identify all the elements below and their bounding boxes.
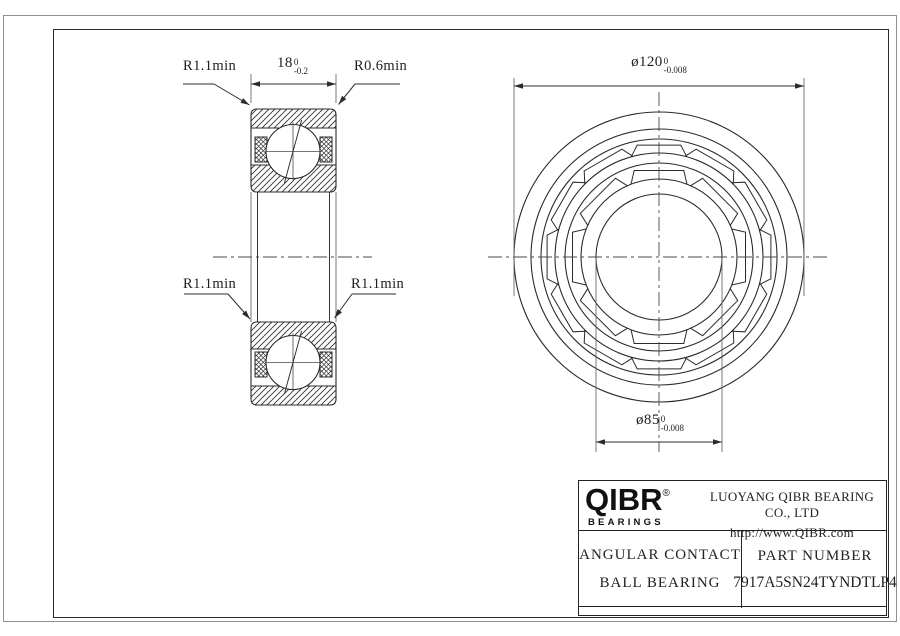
product-type-line1: ANGULAR CONTACT — [579, 547, 741, 564]
part-number-value: 7917A5SN24TYNDTLP4 — [733, 574, 897, 592]
outer-diameter-tol-lower: -0.008 — [664, 66, 687, 75]
fillet-label-top-right: R0.6min — [354, 58, 407, 75]
product-type-line2: BALL BEARING — [599, 575, 720, 592]
outer-diameter-value: ø120 — [631, 54, 663, 70]
bore-diameter-value: ø85 — [636, 412, 660, 428]
part-number-label: PART NUMBER — [758, 548, 873, 565]
product-type-cell: ANGULAR CONTACT BALL BEARING — [579, 531, 741, 608]
part-number-cell: PART NUMBER 7917A5SN24TYNDTLP4 — [742, 531, 888, 608]
bore-diameter-tol-lower: -0.008 — [661, 424, 684, 433]
width-dimension: 180-0.2 — [277, 55, 308, 78]
outer-diameter-dimension: ø1200-0.008 — [631, 54, 687, 77]
width-dimension-lines — [251, 74, 336, 103]
width-tol-lower: -0.2 — [294, 67, 308, 76]
logo-subtext: BEARINGS — [588, 518, 670, 528]
company-logo: QIBR® BEARINGS — [585, 484, 670, 528]
fillet-label-mid-left: R1.1min — [183, 276, 236, 293]
logo-text: QIBR — [585, 482, 663, 517]
drawing-sheet: R1.1min 180-0.2 R0.6min R1.1min R1.1min … — [0, 0, 900, 636]
registered-mark-icon: ® — [663, 488, 670, 499]
front-view — [488, 92, 830, 452]
section-view — [213, 109, 372, 405]
bore-diameter-dimension: ø850-0.008 — [636, 412, 684, 435]
fillet-label-top-left: R1.1min — [183, 58, 236, 75]
fillet-label-mid-right: R1.1min — [351, 276, 404, 293]
title-block: QIBR® BEARINGS LUOYANG QIBR BEARING CO.,… — [578, 480, 887, 616]
width-value: 18 — [277, 55, 293, 71]
company-name: LUOYANG QIBR BEARING CO., LTD — [699, 489, 885, 521]
